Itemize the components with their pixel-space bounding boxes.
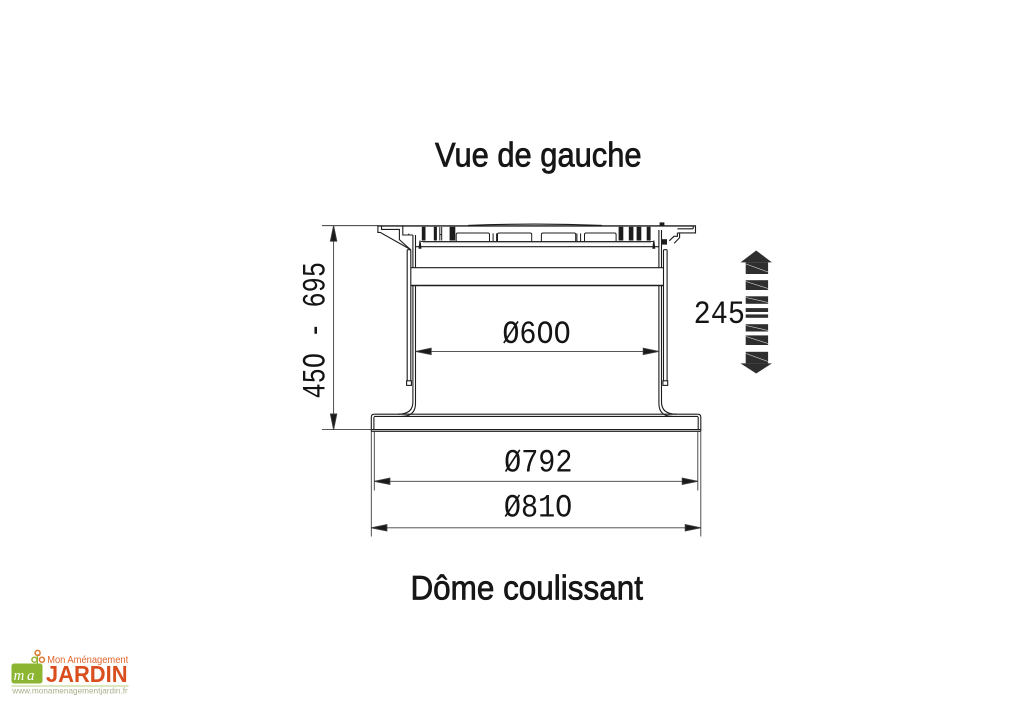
- svg-text:Ø81O: Ø81O: [504, 491, 572, 527]
- svg-text:245: 245: [694, 298, 745, 334]
- svg-text:JARDIN: JARDIN: [46, 661, 128, 687]
- svg-text:ma: ma: [14, 668, 35, 684]
- svg-text:www.monamenagementjardin.fr: www.monamenagementjardin.fr: [11, 686, 128, 695]
- svg-text:Ø792: Ø792: [504, 446, 572, 482]
- svg-text:Dôme coulissant: Dôme coulissant: [410, 570, 643, 608]
- svg-text:Vue de gauche: Vue de gauche: [435, 136, 642, 174]
- svg-text:45O - 695: 45O - 695: [298, 262, 335, 399]
- svg-text:Ø6OO: Ø6OO: [502, 318, 570, 354]
